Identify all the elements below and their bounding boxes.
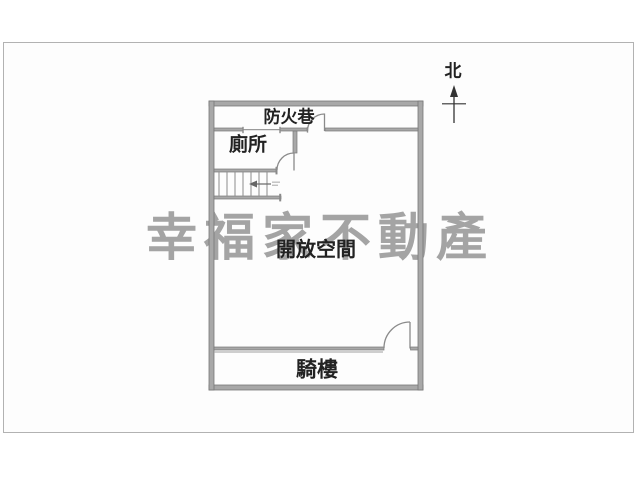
wall-top [209,101,423,106]
toilet-door-arc [277,153,294,170]
wall-right [418,101,423,390]
stair-rail-top [214,169,277,172]
fire-lane-wall-seg2 [280,128,307,131]
entrance-door-arc [384,322,410,348]
window-jamb-right [279,127,280,133]
fire-lane-wall-seg1 [214,128,243,131]
wall-bottom [209,385,423,390]
stair-rail-cap-bottom [279,194,281,202]
toilet-door [277,153,294,171]
staircase [214,167,281,202]
arcade-wall-main [214,347,384,350]
stairs-tiny-annotation [272,182,280,183]
fire-lane-wall-seg3 [325,128,418,131]
arcade-wall [214,347,418,352]
fire-lane-window [242,127,280,133]
toilet-label: 廁所 [229,136,267,155]
window-jamb-left [242,127,243,133]
arcade-label: 騎樓 [296,360,338,381]
north-arrow-icon [442,85,466,123]
fire-lane-label: 防火巷 [264,109,315,126]
stairs-up-arrow [249,181,280,188]
floor-plan-page: { "canvas": { "background": "#ffffff", "… [0,0,640,480]
open-space-label: 開放空間 [276,240,356,260]
wall-left [209,101,214,390]
north-label: 北 [445,63,462,80]
entrance-door [384,322,410,349]
arcade-wall-stub [411,347,419,350]
stair-rail-bottom [214,196,281,199]
stairs-tiny-annotation2 [272,185,278,186]
toilet-wall [293,131,297,153]
